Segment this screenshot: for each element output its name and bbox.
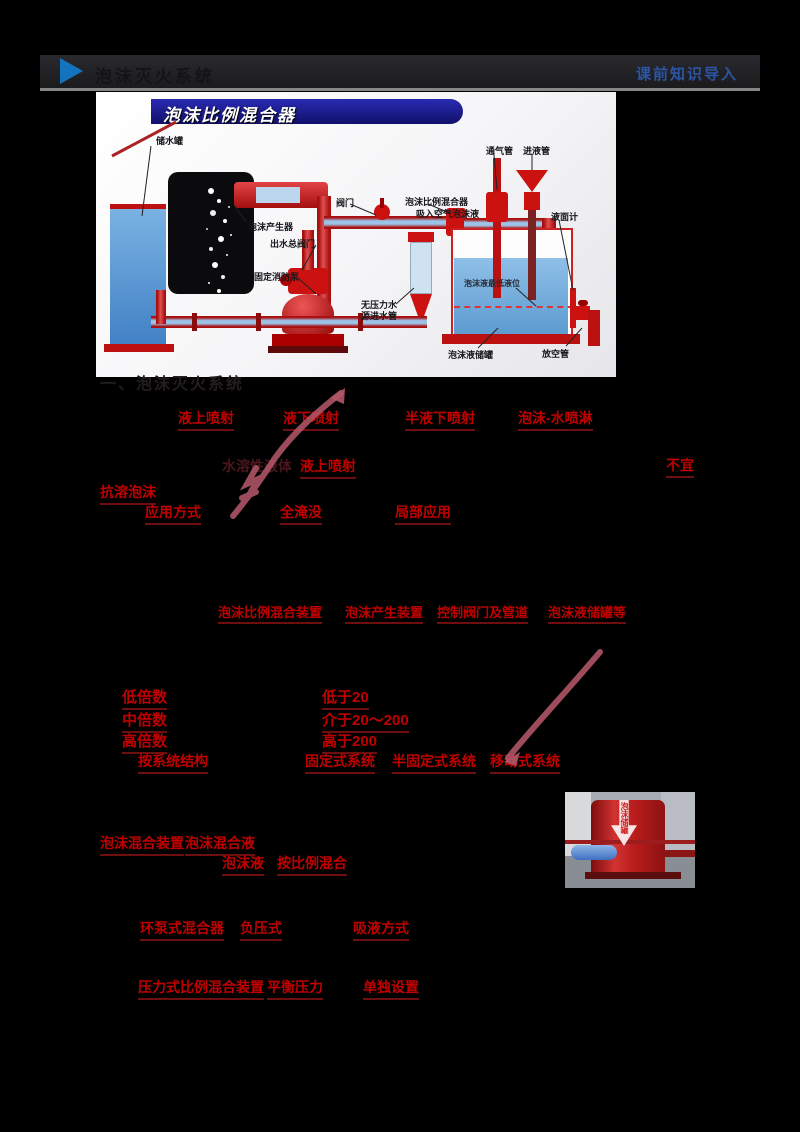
foam-proportioner-diagram: 泡沫比例混合器 — [96, 92, 616, 377]
label-min-level: 泡沫液最低液位 — [464, 278, 520, 289]
label-fire-pump: 固定消防泵 — [254, 270, 299, 283]
photo-pipe — [665, 850, 695, 857]
mixing-term: 泡沫混合装置 — [100, 833, 184, 856]
note-red-term: 液上喷射 — [300, 456, 356, 479]
application-item: 全淹没 — [280, 502, 322, 525]
label-level-gauge: 液面计 — [551, 210, 578, 223]
component-item: 泡沫产生装置 — [345, 602, 423, 624]
spray-type-item: 半液下喷射 — [405, 408, 475, 431]
label-vent-pipe: 通气管 — [486, 144, 513, 157]
label-water-inlet-pipe: 源进水管 — [361, 309, 397, 322]
photo-blue-pump-cylinder — [571, 845, 617, 860]
note-dark-text: 水溶性液体 — [222, 456, 292, 476]
component-item: 泡沫液储罐等 — [548, 602, 626, 624]
proportioner-type: 环泵式混合器 — [140, 918, 224, 941]
spray-type-item: 液上喷射 — [178, 408, 234, 431]
spray-type-item: 泡沫-水喷淋 — [518, 408, 593, 431]
document-page: 泡沫灭火系统 课前知识导入 泡沫比例混合器 — [0, 0, 800, 1132]
structure-item: 移动式系统 — [490, 751, 560, 774]
header-bar: 泡沫灭火系统 课前知识导入 — [40, 55, 760, 91]
application-item: 应用方式 — [145, 502, 201, 525]
mixing-term: 泡沫液 — [222, 853, 264, 876]
spray-type-item: 液下喷射 — [283, 408, 339, 431]
label-drain-pipe: 放空管 — [542, 347, 569, 360]
expansion-row-label: 低倍数 — [122, 686, 167, 710]
label-foam-generator: 泡沫产生器 — [248, 220, 293, 233]
application-item: 局部应用 — [395, 502, 451, 525]
mixing-term: 按比例混合 — [277, 853, 347, 876]
expansion-row-value: 低于20 — [322, 686, 369, 710]
structure-item: 固定式系统 — [305, 751, 375, 774]
proportioner-type: 吸液方式 — [353, 918, 409, 941]
label-outlet-valve: 出水总阀门 — [270, 237, 315, 250]
header-title: 泡沫灭火系统 — [95, 62, 215, 87]
component-item: 控制阀门及管道 — [437, 602, 528, 624]
label-air-foam-intake: 吸入空气泡沫液 — [416, 207, 479, 220]
structure-item: 半固定式系统 — [392, 751, 476, 774]
header-module-label: 课前知识导入 — [636, 63, 738, 84]
photo-pipe — [565, 840, 695, 844]
proportioner-type: 压力式比例混合装置 — [138, 977, 264, 1000]
label-valve: 阀门 — [336, 196, 354, 209]
component-item: 泡沫比例混合装置 — [218, 602, 322, 624]
photo-skid-base — [585, 872, 681, 879]
photo-annotation-text: 泡沫储罐 — [619, 802, 630, 834]
label-liquid-inlet-pipe: 进液管 — [523, 144, 550, 157]
note-right-term: 不宜 — [666, 455, 694, 478]
photo-scene: 泡沫储罐 — [565, 792, 695, 888]
proportioner-type: 负压式 — [240, 918, 282, 941]
play-triangle-icon — [60, 58, 83, 84]
foam-tank-photo: 泡沫储罐 — [565, 785, 695, 895]
label-storage-tank: 储水罐 — [156, 134, 183, 147]
proportioner-type: 单独设置 — [363, 977, 419, 1000]
structure-row-label: 按系统结构 — [138, 751, 208, 774]
label-foam-tank: 泡沫液储罐 — [448, 348, 493, 361]
proportioner-type: 平衡压力 — [267, 977, 323, 1000]
